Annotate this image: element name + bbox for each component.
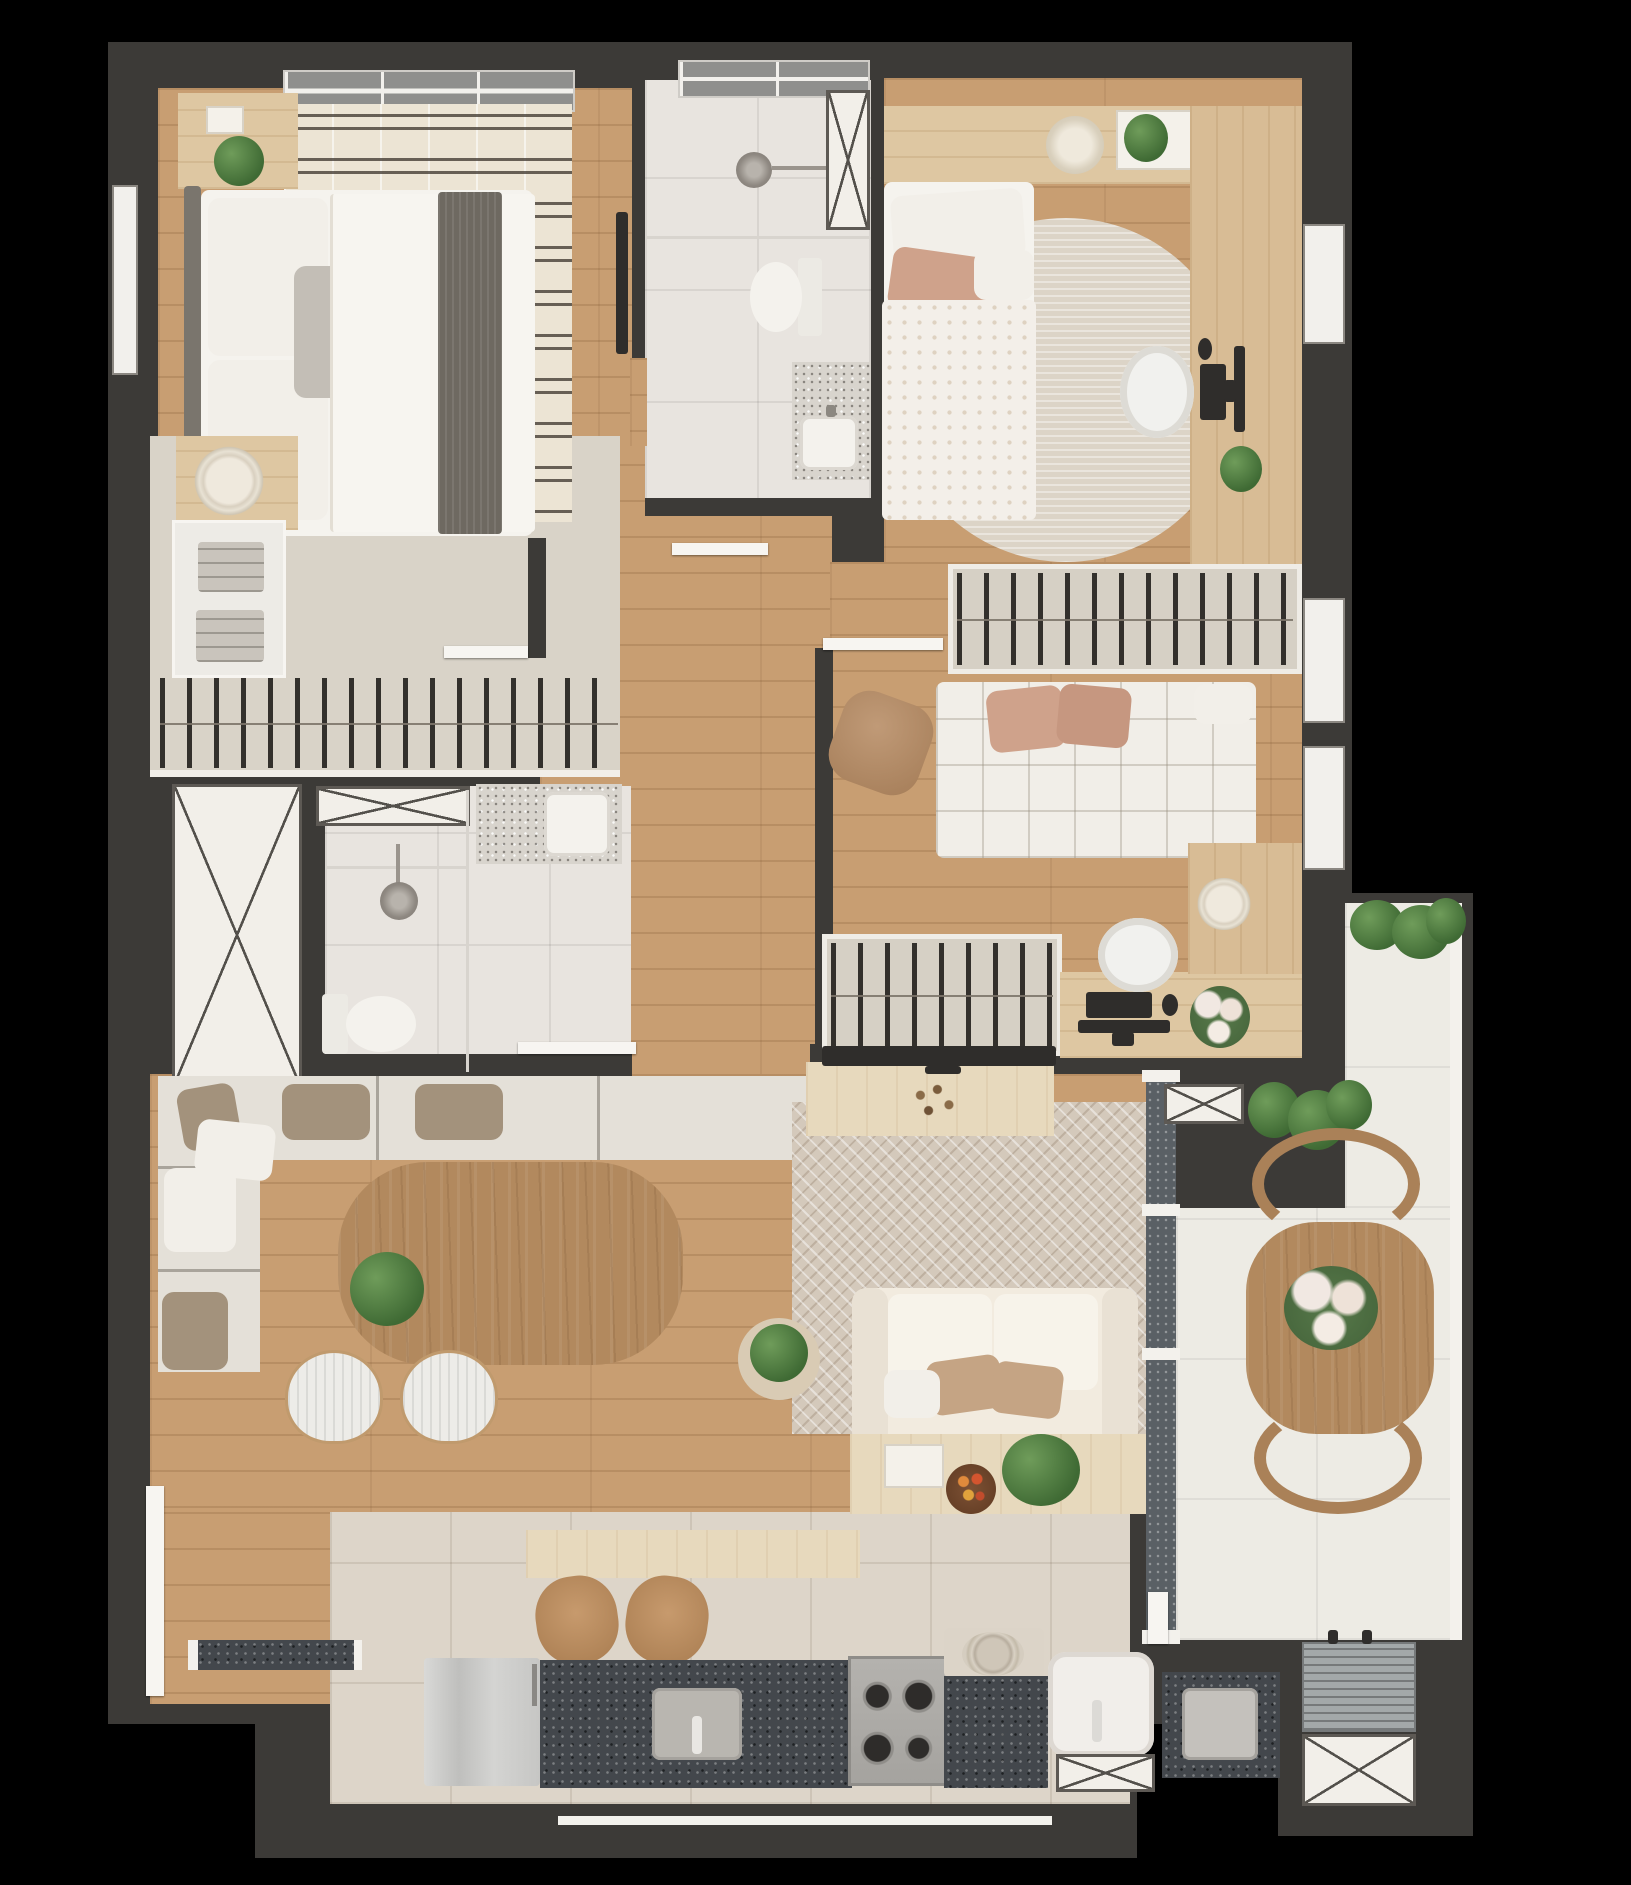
bedroom2-monitor-stand <box>1224 380 1236 402</box>
bedroom2-mouse <box>1198 338 1212 360</box>
bar-counter <box>526 1530 860 1578</box>
bedroom3-wardrobe-top <box>948 564 1302 674</box>
bedroom1-wall-tv <box>616 212 628 354</box>
bedroom2-right-window <box>1303 224 1345 344</box>
sofa-arm-right <box>1102 1288 1138 1446</box>
living-sliding-door <box>146 1486 164 1696</box>
kitchen-faucet <box>692 1716 702 1754</box>
sofa-pillow-2 <box>989 1360 1065 1420</box>
laundry-tub-faucet <box>1092 1700 1102 1742</box>
laundry-balcony-door <box>1148 1592 1168 1644</box>
bedroom1-bed-runner <box>438 192 502 534</box>
kitchen-windowsill <box>558 1816 1052 1825</box>
closet-trim <box>150 770 620 777</box>
ac-condenser-grille <box>1302 1642 1416 1732</box>
shaft-left-tall <box>172 784 302 1086</box>
bathroom1-shower-head <box>736 152 772 188</box>
wall-closet-stub <box>528 538 546 658</box>
balcony-hedge-3 <box>1426 898 1466 944</box>
bedroom1-plant <box>214 136 264 186</box>
side-table-plant <box>750 1324 808 1382</box>
bedroom3-decor-bowl <box>1196 878 1252 930</box>
bedroom3-wardrobe-bottom <box>822 934 1062 1056</box>
living-floor-left <box>150 1512 330 1704</box>
dining-table-plant <box>350 1252 424 1326</box>
sofa-pillow-white <box>884 1370 940 1418</box>
track-post-3 <box>1142 1348 1180 1360</box>
bedroom3-flower-vase <box>1190 986 1250 1048</box>
closet3-right-window <box>1303 598 1345 723</box>
bathroom2-shower-head <box>380 882 418 920</box>
bedroom2-office-chair <box>1120 346 1194 438</box>
refrigerator-handle <box>532 1664 537 1706</box>
entry-threshold-track <box>196 1640 356 1670</box>
bathroom1-faucet <box>826 405 836 417</box>
bedroom3-pillow-pink1 <box>985 684 1067 754</box>
closet-hanging-rail <box>160 678 618 768</box>
bedroom2-door-leaf <box>672 543 768 555</box>
bedroom3-keyboard <box>1086 992 1152 1018</box>
console-fruit-bowl <box>946 1464 996 1514</box>
track-post-2 <box>1142 1204 1180 1216</box>
entry-track-cap-right <box>354 1640 362 1670</box>
console-plant <box>1002 1434 1080 1506</box>
bedroom3-door-leaf <box>823 638 943 650</box>
bedroom3-right-window <box>1303 746 1345 870</box>
entry-track-cap-left <box>188 1640 198 1670</box>
bedroom3-pillow-white <box>1194 684 1252 724</box>
bedroom3-mouse <box>1162 994 1178 1016</box>
bedroom1-round-tray <box>194 446 264 516</box>
washer-lid <box>962 1632 1024 1676</box>
bathroom2-glass-vertical <box>466 790 469 1072</box>
shaft-laundry <box>1056 1754 1155 1792</box>
bedroom3-pillow-pink2 <box>1056 683 1133 749</box>
bathroom2-toilet-bowl <box>346 996 416 1052</box>
balcony-right-wall <box>1450 903 1462 1640</box>
gas-stove <box>848 1656 948 1786</box>
dining-chair-2 <box>400 1350 498 1444</box>
closet-folded-clothes-2 <box>196 610 264 662</box>
bench-pillow-white2 <box>164 1168 236 1252</box>
shaft-balcony <box>1164 1084 1244 1124</box>
bathroom2-door-leaf <box>518 1042 636 1054</box>
laundry-counter-left <box>944 1676 1048 1788</box>
refrigerator <box>424 1658 540 1786</box>
bedroom2-duvet <box>882 300 1036 520</box>
bedroom2-pillow-small <box>974 250 1034 300</box>
bedroom1-basket <box>206 106 244 134</box>
bench-pillow-3 <box>415 1084 503 1140</box>
track-post-1 <box>1142 1070 1180 1082</box>
living-tv-stand <box>925 1066 961 1074</box>
dining-chair-1 <box>285 1350 383 1444</box>
bedroom3-office-chair <box>1098 918 1178 992</box>
console-tray <box>884 1444 944 1488</box>
console-chain-decor <box>900 1076 968 1124</box>
bedroom3-monitor-stand <box>1112 1032 1134 1046</box>
bench-pillow-4 <box>162 1292 228 1370</box>
bedroom2-keyboard <box>1200 364 1226 420</box>
shaft-ac <box>1302 1734 1416 1806</box>
bathroom2-toilet-tank <box>322 994 348 1054</box>
bathroom1-glass-partition <box>645 236 871 239</box>
balcony-flowers <box>1284 1266 1378 1350</box>
bedroom2-desk-plant <box>1220 446 1262 492</box>
bedroom1-duvet <box>330 194 535 532</box>
vertical-garden-3 <box>1326 1080 1372 1130</box>
wall-bath1-bottom <box>645 498 887 516</box>
bathroom1-toilet-bowl <box>750 262 802 332</box>
floor-plan <box>0 0 1631 1885</box>
laundry-steel-sink <box>1182 1688 1258 1760</box>
bath1-door-opening <box>630 358 647 446</box>
wall-bath2-bottom <box>270 1054 632 1076</box>
closet-folded-clothes-1 <box>198 542 264 592</box>
sofa-arm-left <box>852 1288 888 1446</box>
shaft-small-horizontal <box>316 786 470 826</box>
balcony-chair-bottom <box>1254 1402 1422 1514</box>
bathroom2-shower-arm <box>396 844 400 886</box>
bathroom2-sink <box>544 792 610 856</box>
bench-pillow-2 <box>282 1084 370 1140</box>
closet-door-leaf <box>444 646 528 658</box>
living-tv <box>822 1046 1056 1066</box>
shaft-bathroom1 <box>826 90 870 230</box>
ac-pipe-1 <box>1328 1630 1338 1644</box>
bedroom2-table-lamp <box>1046 116 1104 174</box>
bedroom1-left-window <box>112 185 138 375</box>
ac-pipe-2 <box>1362 1630 1372 1644</box>
bedroom2-tray-plant <box>1124 114 1168 162</box>
bathroom1-sink <box>800 416 858 470</box>
